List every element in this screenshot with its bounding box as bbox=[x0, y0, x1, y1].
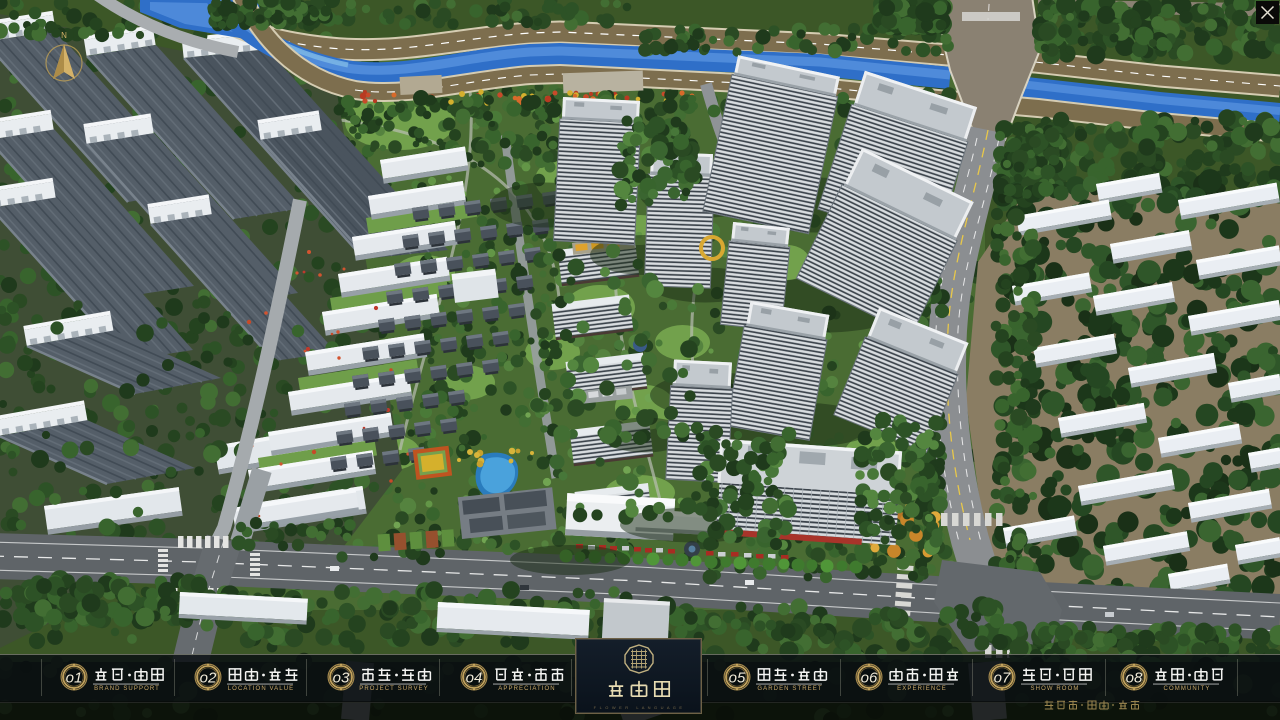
svg-text:LOCATION VALUE: LOCATION VALUE bbox=[227, 686, 294, 692]
svg-text:GARDEN STREET: GARDEN STREET bbox=[757, 686, 822, 692]
svg-text:SHOW ROOM: SHOW ROOM bbox=[1030, 686, 1079, 692]
svg-text:COMMUNITY: COMMUNITY bbox=[1164, 686, 1211, 692]
svg-text:N: N bbox=[61, 31, 67, 40]
svg-text:APPRECIATION: APPRECIATION bbox=[498, 686, 555, 692]
svg-text:BRAND SUPPORT: BRAND SUPPORT bbox=[94, 686, 160, 692]
svg-text:PROJECT SURVEY: PROJECT SURVEY bbox=[359, 686, 429, 692]
svg-text:EXPERIENCE: EXPERIENCE bbox=[897, 686, 947, 692]
